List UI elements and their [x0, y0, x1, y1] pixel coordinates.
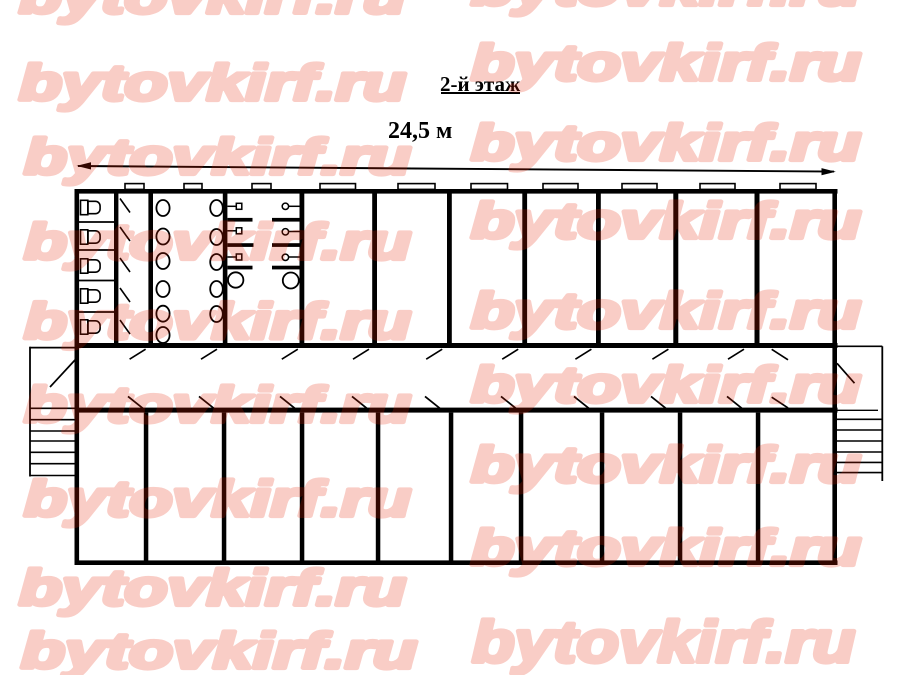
- svg-text:bytovkirf.ru: bytovkirf.ru: [24, 294, 411, 350]
- svg-text:bytovkirf.ru: bytovkirf.ru: [19, 0, 406, 24]
- svg-text:bytovkirf.ru: bytovkirf.ru: [471, 437, 861, 493]
- svg-text:bytovkirf.ru: bytovkirf.ru: [24, 129, 411, 185]
- svg-text:bytovkirf.ru: bytovkirf.ru: [19, 560, 406, 616]
- svg-text:bytovkirf.ru: bytovkirf.ru: [19, 55, 406, 111]
- svg-text:bytovkirf.ru: bytovkirf.ru: [21, 623, 417, 675]
- svg-text:bytovkirf.ru: bytovkirf.ru: [24, 214, 411, 270]
- svg-text:bytovkirf.ru: bytovkirf.ru: [24, 471, 411, 527]
- svg-text:bytovkirf.ru: bytovkirf.ru: [471, 193, 861, 249]
- svg-text:bytovkirf.ru: bytovkirf.ru: [471, 520, 861, 576]
- svg-text:bytovkirf.ru: bytovkirf.ru: [24, 377, 411, 433]
- svg-text:bytovkirf.ru: bytovkirf.ru: [472, 610, 855, 675]
- svg-text:bytovkirf.ru: bytovkirf.ru: [471, 35, 861, 91]
- svg-text:bytovkirf.ru: bytovkirf.ru: [471, 283, 861, 339]
- svg-text:bytovkirf.ru: bytovkirf.ru: [471, 357, 861, 413]
- svg-text:bytovkirf.ru: bytovkirf.ru: [471, 115, 861, 171]
- svg-text:bytovkirf.ru: bytovkirf.ru: [471, 0, 861, 16]
